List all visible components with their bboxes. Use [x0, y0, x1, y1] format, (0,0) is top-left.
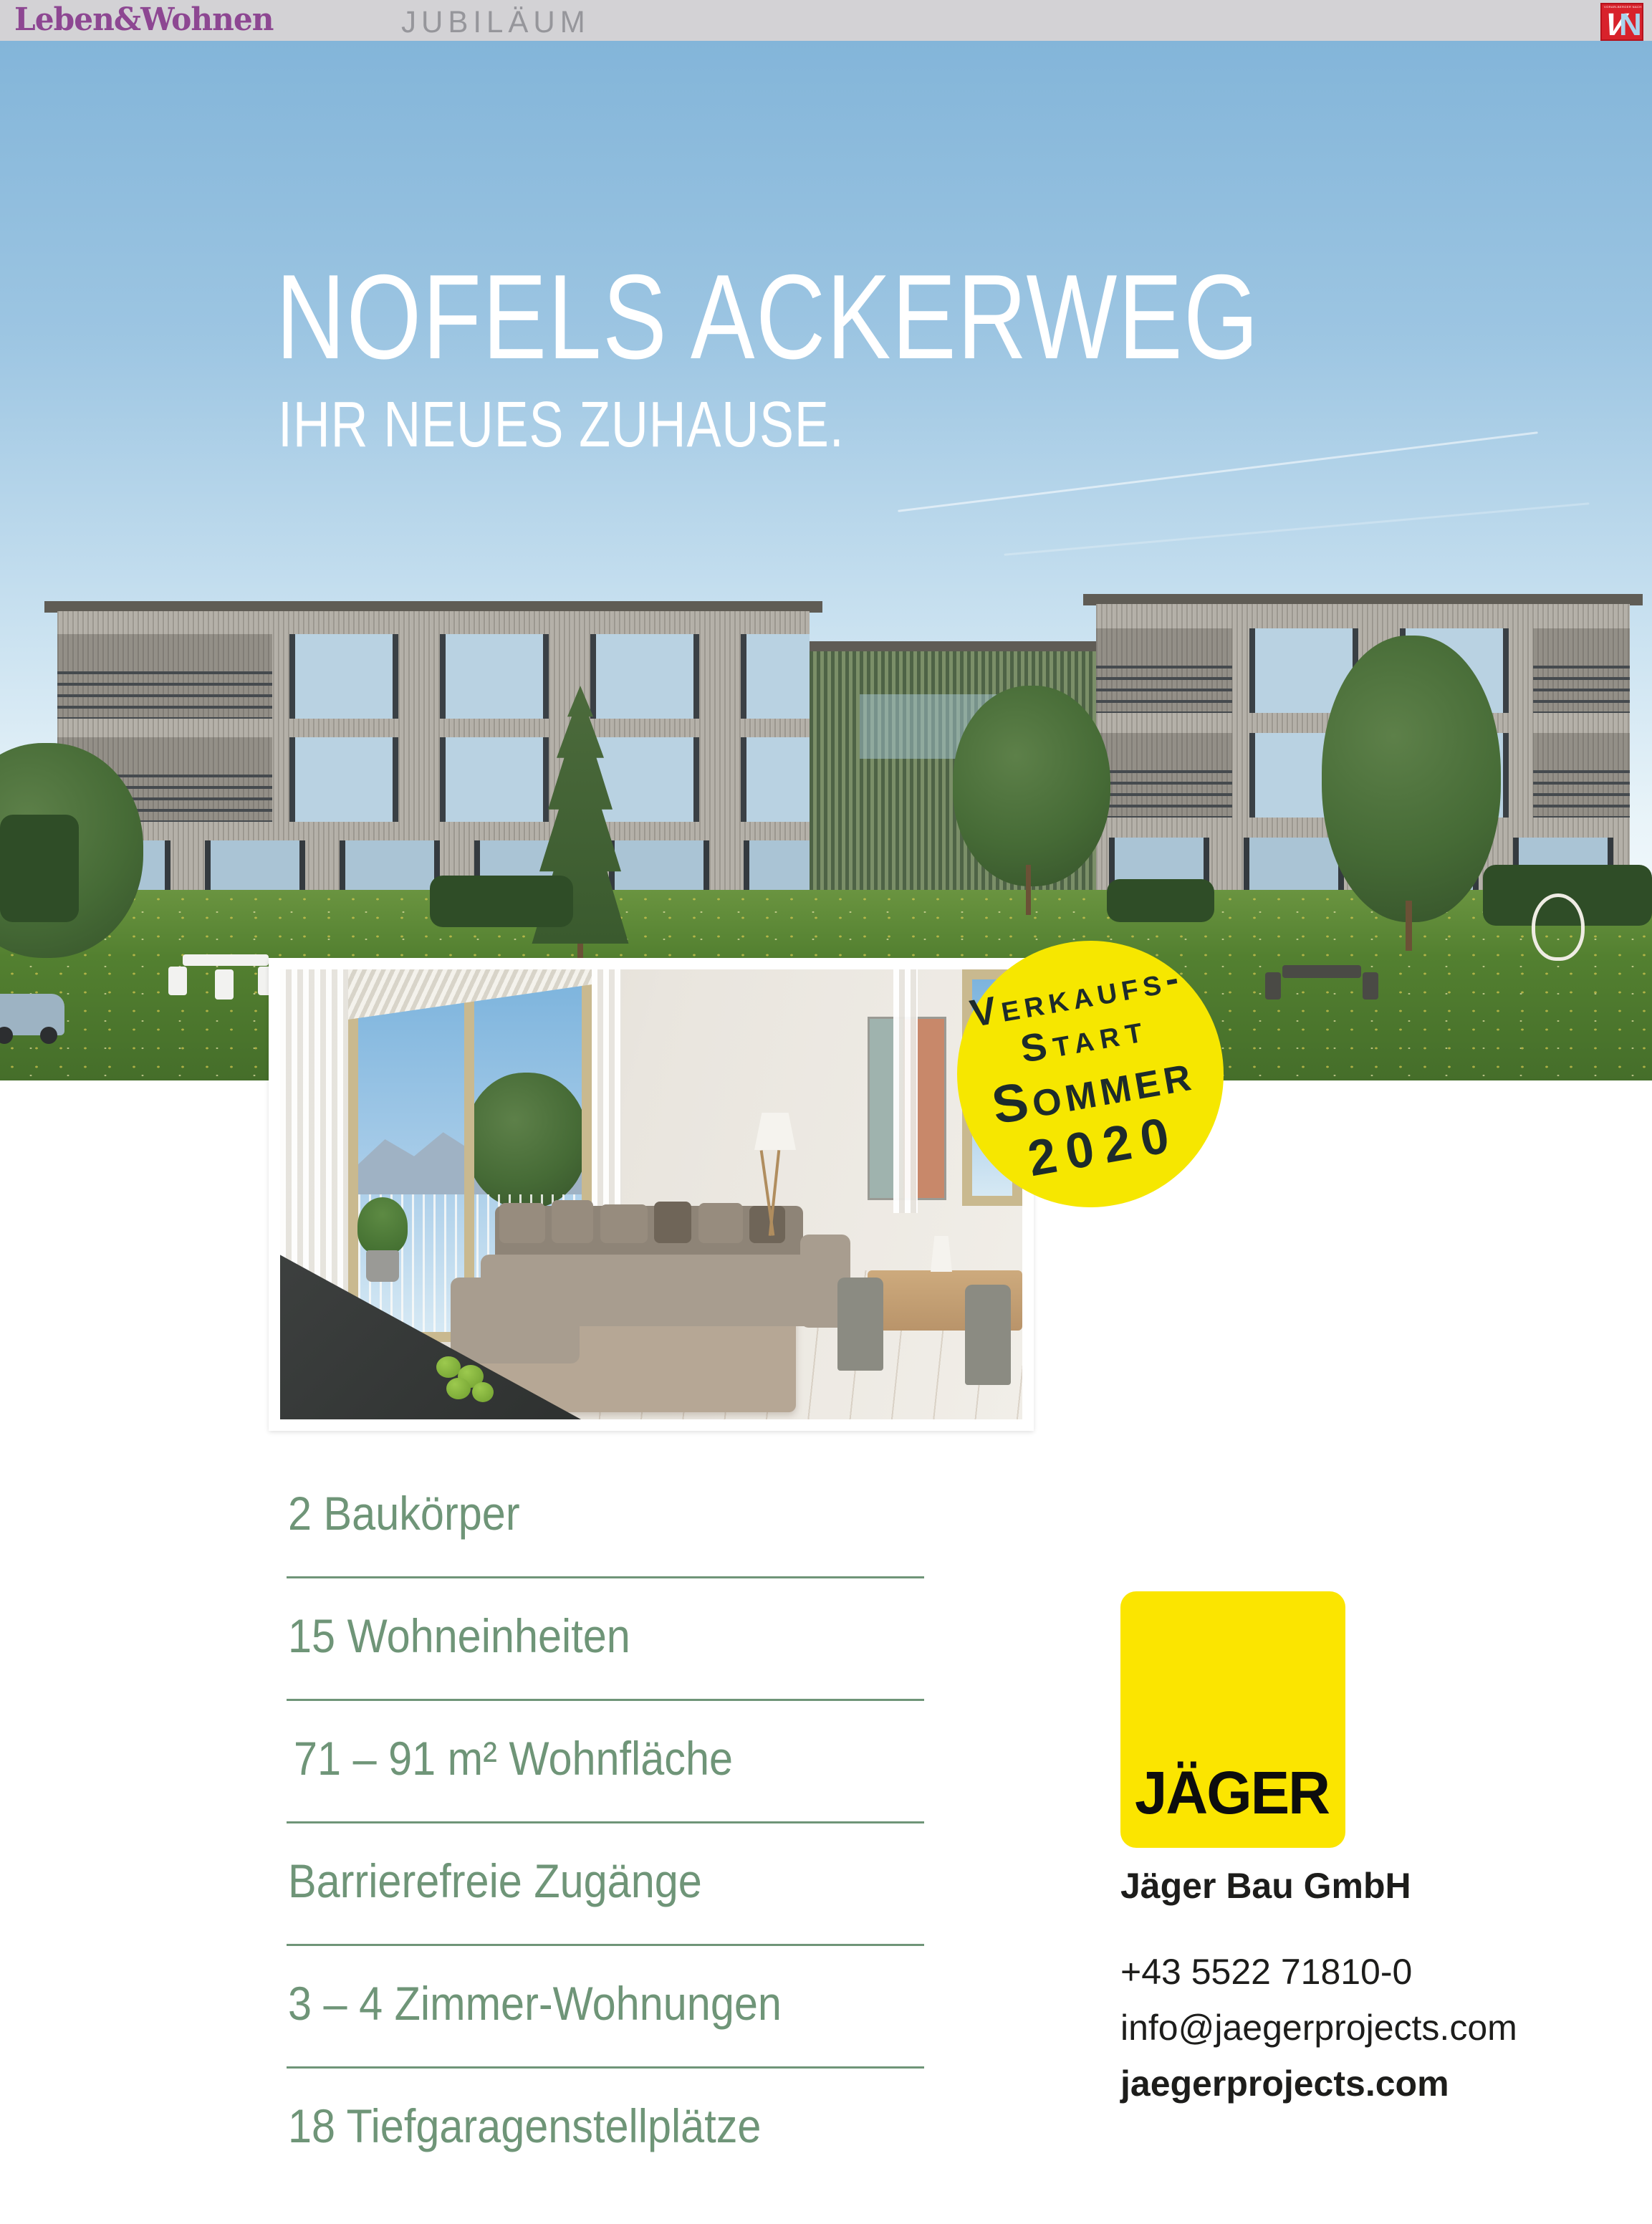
- sky-contrail: [898, 431, 1538, 512]
- dining-chair: [965, 1285, 1011, 1385]
- pillow: [749, 1206, 785, 1243]
- advert-page: Leben&Wohnen JUBILÄUM VORARLBERGER NACHR…: [0, 0, 1652, 2224]
- project-title: NOFELS ACKERWEG: [276, 256, 1259, 378]
- dining-chair: [837, 1278, 883, 1371]
- section-label: JUBILÄUM: [401, 4, 590, 39]
- pillow: [600, 1204, 648, 1243]
- company-email[interactable]: info@jaegerprojects.com: [1120, 2007, 1517, 2048]
- hedge: [1107, 879, 1214, 922]
- pillow: [499, 1203, 545, 1243]
- patio-table: [1282, 965, 1361, 978]
- balcony: [57, 634, 272, 719]
- feature-divider: [287, 2066, 924, 2069]
- hedge: [430, 876, 573, 927]
- badge-text: Verkaufs- Start Sommer 2020: [966, 955, 1214, 1193]
- window-row: [272, 737, 810, 822]
- feature-divider: [287, 1699, 924, 1701]
- patio-chair: [1363, 972, 1378, 1000]
- apple: [472, 1382, 494, 1402]
- feature-item: 18 Tiefgaragenstellplätze: [288, 2097, 933, 2154]
- jaeger-logo: JÄGER: [1120, 1591, 1345, 1848]
- balcony-railing: [1096, 770, 1232, 818]
- feature-text: 15 Wohneinheiten: [288, 1607, 630, 1664]
- floor-lamp: [754, 1113, 796, 1150]
- feature-divider: [287, 1944, 924, 1946]
- feature-item: 3 – 4 Zimmer-Wohnungen: [288, 1975, 933, 2032]
- plant-pot: [366, 1250, 399, 1282]
- feature-item: Barrierefreie Zugänge: [288, 1852, 933, 1909]
- pillow: [654, 1202, 691, 1243]
- sofa-chaise: [451, 1278, 580, 1363]
- jaeger-logo-text: JÄGER: [1135, 1758, 1329, 1828]
- car-wheel: [40, 1027, 57, 1044]
- sky-contrail: [1004, 502, 1589, 555]
- balcony: [1533, 628, 1630, 713]
- magazine-brand: Leben&Wohnen: [14, 1, 273, 38]
- curtain: [893, 969, 918, 1213]
- company-name: Jäger Bau GmbH: [1120, 1865, 1411, 1907]
- balcony: [1533, 733, 1630, 818]
- tree: [953, 686, 1110, 886]
- table-vase: [931, 1236, 952, 1272]
- vn-logo-letter-n: N: [1619, 9, 1642, 41]
- interior-photo-frame: [269, 958, 1034, 1431]
- feature-text: 71 – 91 m² Wohnfläche: [294, 1730, 733, 1787]
- vn-newspaper-logo: VORARLBERGER NACHRICHTEN V N: [1600, 3, 1643, 41]
- balcony-railing: [1096, 666, 1232, 713]
- tree: [1322, 636, 1501, 922]
- sales-start-badge: Verkaufs- Start Sommer 2020: [957, 941, 1224, 1207]
- hanging-chair: [1532, 893, 1585, 961]
- feature-text: 2 Baukörper: [288, 1485, 520, 1542]
- interior-photo: [280, 969, 1022, 1419]
- pillow: [698, 1203, 743, 1243]
- tree-trunk: [1406, 901, 1412, 951]
- feature-text: 18 Tiefgaragenstellplätze: [288, 2097, 761, 2154]
- tree-trunk: [1026, 865, 1031, 915]
- sofa-pillows: [499, 1200, 789, 1247]
- hero-image: NOFELS ACKERWEG IHR NEUES ZUHAUSE.: [0, 41, 1652, 1080]
- balcony: [1096, 628, 1232, 713]
- balcony-railing: [1533, 666, 1630, 713]
- feature-divider: [287, 1821, 924, 1823]
- plant: [357, 1197, 408, 1255]
- company-website[interactable]: jaegerprojects.com: [1120, 2063, 1449, 2104]
- feature-item: 15 Wohneinheiten: [288, 1607, 933, 1664]
- feature-text: 3 – 4 Zimmer-Wohnungen: [288, 1975, 782, 2032]
- tree-view: [466, 1073, 587, 1209]
- window-row: [272, 634, 810, 719]
- feature-text: Barrierefreie Zugänge: [288, 1852, 702, 1909]
- patio-chair: [1265, 972, 1281, 1000]
- feature-divider: [287, 1576, 924, 1578]
- project-subtitle: IHR NEUES ZUHAUSE.: [278, 390, 845, 459]
- patio-table: [183, 954, 269, 966]
- balcony-railing: [1533, 770, 1630, 818]
- company-phone[interactable]: +43 5522 71810-0: [1120, 1951, 1412, 1993]
- patio-chair: [168, 967, 187, 995]
- balcony-railing: [57, 671, 272, 719]
- pillow: [552, 1200, 593, 1243]
- patio-chair: [215, 969, 234, 1000]
- apple: [446, 1378, 471, 1399]
- feature-item: 2 Baukörper: [288, 1485, 933, 1542]
- masthead-bar: Leben&Wohnen JUBILÄUM VORARLBERGER NACHR…: [0, 0, 1652, 41]
- apple: [436, 1356, 461, 1378]
- feature-item: 71 – 91 m² Wohnfläche: [288, 1730, 933, 1787]
- hedge: [0, 815, 79, 922]
- balcony: [1096, 733, 1232, 818]
